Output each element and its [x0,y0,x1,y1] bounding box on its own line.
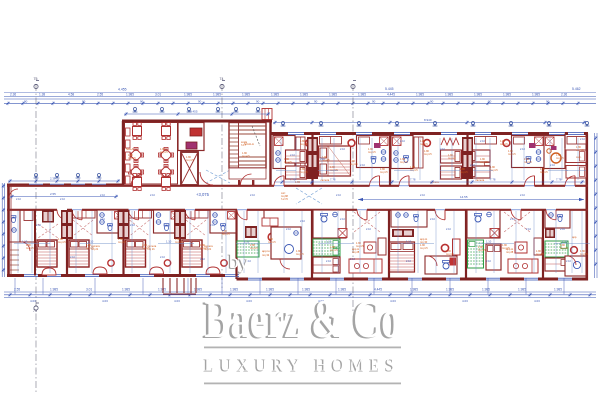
svg-text:mq 4.5: mq 4.5 [200,247,208,250]
svg-text:2.10: 2.10 [320,158,325,161]
svg-text:mq 4.5: mq 4.5 [380,171,388,174]
svg-text:2.10: 2.10 [340,218,345,221]
svg-text:1.985: 1.985 [213,93,221,97]
svg-text:Baerz & Co: Baerz & Co [205,289,401,349]
svg-text:mq 4.5: mq 4.5 [556,157,564,160]
svg-text:1.985: 1.985 [329,93,337,97]
svg-text:mq 4.5: mq 4.5 [250,247,258,250]
svg-text:1.985: 1.985 [158,288,166,292]
svg-text:1.985: 1.985 [482,288,490,292]
svg-text:2.10: 2.10 [210,224,215,227]
svg-text:1.10: 1.10 [166,239,172,243]
svg-text:90: 90 [198,99,202,103]
svg-text:mq 4.5: mq 4.5 [284,161,292,164]
svg-text:14.55: 14.55 [460,195,468,199]
svg-text:cam.: cam. [576,156,582,159]
svg-text:2.10: 2.10 [360,164,365,167]
svg-text:mq 4.5: mq 4.5 [300,143,308,146]
svg-text:2.10: 2.10 [550,164,555,167]
svg-text:mq 4.5: mq 4.5 [580,253,588,256]
svg-text:7.78: 7.78 [410,178,416,182]
svg-text:2.10: 2.10 [440,148,445,151]
svg-text:90: 90 [314,99,318,103]
svg-text:mq 28: mq 28 [352,250,360,254]
svg-text:90: 90 [256,99,260,103]
svg-text:7.78: 7.78 [330,178,336,182]
svg-text:2.10: 2.10 [560,228,565,231]
svg-text:mq 4.5: mq 4.5 [118,241,126,244]
svg-text:mq 4.5: mq 4.5 [478,249,486,252]
svg-text:1.10: 1.10 [88,239,94,243]
svg-text:2.10: 2.10 [400,140,405,143]
svg-text:1.985: 1.985 [416,93,424,97]
svg-text:2.36: 2.36 [10,93,16,97]
svg-text:2.10: 2.10 [250,194,255,197]
svg-text:camera: camera [476,178,485,182]
svg-text:mq 4.5: mq 4.5 [86,247,94,250]
svg-text:mq 4.5: mq 4.5 [350,163,358,166]
svg-text:90: 90 [140,99,144,103]
svg-text:2.10: 2.10 [350,258,355,261]
svg-text:2.10: 2.10 [430,218,435,221]
svg-text:1.985: 1.985 [358,93,366,97]
svg-text:1.985: 1.985 [532,93,540,97]
svg-text:mq 4.5: mq 4.5 [400,161,408,164]
svg-text:mq 4.5: mq 4.5 [160,151,168,154]
svg-text:4.455: 4.455 [190,110,198,114]
svg-text:1.10: 1.10 [22,239,28,243]
svg-text:2.10: 2.10 [100,218,105,221]
svg-text:mq 4.5: mq 4.5 [446,253,454,256]
svg-text:74: 74 [220,77,224,81]
svg-text:mq 4.5: mq 4.5 [26,247,34,250]
svg-text:1.985: 1.985 [300,93,308,97]
svg-text:2.10: 2.10 [326,260,331,263]
svg-text:1.10: 1.10 [406,239,412,243]
svg-text:2.10: 2.10 [526,228,531,231]
svg-text:1.10: 1.10 [562,239,568,243]
svg-text:2.10: 2.10 [446,228,451,231]
svg-text:mq 4.5: mq 4.5 [300,171,308,174]
svg-text:2.10: 2.10 [286,228,291,231]
svg-text:2.10: 2.10 [340,148,345,151]
svg-text:2.10: 2.10 [470,164,475,167]
svg-text:4.03: 4.03 [534,299,540,303]
svg-text:mq 4.5: mq 4.5 [460,171,468,174]
svg-text:2.39: 2.39 [50,177,56,181]
svg-text:1.10: 1.10 [486,239,492,243]
svg-text:2.10: 2.10 [336,194,341,197]
svg-text:75: 75 [33,309,37,313]
svg-text:mq 4.5: mq 4.5 [142,247,150,250]
svg-text:mq 4.5: mq 4.5 [500,143,508,146]
svg-text:SCALA: SCALA [244,142,254,146]
svg-text:2.10: 2.10 [520,194,525,197]
svg-text:2.10: 2.10 [510,218,515,221]
svg-text:2.10: 2.10 [366,228,371,231]
svg-text:4.445: 4.445 [387,93,395,97]
svg-text:7.78: 7.78 [556,178,562,182]
svg-text:2.10: 2.10 [406,260,411,263]
svg-text:1.985: 1.985 [242,93,250,97]
svg-text:2.10: 2.10 [16,198,21,201]
svg-text:1.38: 1.38 [39,93,45,97]
svg-text:mq 4.5: mq 4.5 [576,149,584,152]
svg-text:mq 4.5: mq 4.5 [186,159,194,162]
svg-text:mq 4.5: mq 4.5 [424,153,432,156]
svg-text:1.985: 1.985 [410,288,418,292]
svg-text:1.985: 1.985 [271,93,279,97]
svg-text:app.to: app.to [262,249,270,253]
svg-text:2.10: 2.10 [486,260,491,263]
svg-text:1.985: 1.985 [554,288,562,292]
svg-text:90: 90 [488,99,492,103]
svg-text:2.10: 2.10 [566,260,571,263]
svg-text:2.10: 2.10 [60,198,65,201]
svg-text:2.10: 2.10 [520,148,525,151]
svg-text:5.445: 5.445 [385,87,394,91]
svg-text:90: 90 [82,99,86,103]
svg-text:2.10: 2.10 [70,256,75,259]
svg-text:mq 4.5: mq 4.5 [536,253,544,256]
svg-text:mq 4.5: mq 4.5 [420,247,428,250]
svg-text:by: by [229,251,249,273]
svg-text:4.03: 4.03 [174,299,180,303]
svg-text:1.10: 1.10 [244,239,250,243]
svg-text:90: 90 [372,99,376,103]
svg-text:4.03: 4.03 [102,299,108,303]
svg-text:1.985: 1.985 [194,288,202,292]
svg-text:2.10: 2.10 [130,224,135,227]
svg-text:90: 90 [546,99,550,103]
svg-text:mq 4.5: mq 4.5 [242,155,250,158]
svg-text:1.985: 1.985 [445,93,453,97]
svg-text:7.78: 7.78 [490,178,496,182]
svg-text:SALA: SALA [126,147,134,151]
svg-text:2.55: 2.55 [97,93,103,97]
svg-text:1.985: 1.985 [122,288,130,292]
svg-text:7.78: 7.78 [290,178,296,182]
svg-text:mq 4.5: mq 4.5 [330,249,338,252]
svg-text:2.10: 2.10 [36,224,41,227]
svg-text:75: 75 [34,77,38,81]
svg-text:4.03: 4.03 [462,299,468,303]
svg-text:+3,075: +3,075 [196,192,210,197]
svg-text:h 2.70: h 2.70 [281,198,289,201]
svg-text:mq 4.5: mq 4.5 [560,247,568,250]
svg-text:1.985: 1.985 [126,93,134,97]
svg-text:90: 90 [430,99,434,103]
svg-text:8.940: 8.940 [424,118,432,122]
svg-text:3.01: 3.01 [86,288,92,292]
svg-text:2.36: 2.36 [561,93,567,97]
svg-text:mq 4.5: mq 4.5 [502,247,510,250]
svg-text:mq 4.5: mq 4.5 [58,241,66,244]
svg-text:mq 32: mq 32 [262,253,270,257]
svg-text:mq 4.5: mq 4.5 [480,161,488,164]
svg-text:2.10: 2.10 [300,220,305,223]
svg-text:mq 4.5: mq 4.5 [524,161,532,164]
svg-text:mq 4.5: mq 4.5 [540,171,548,174]
svg-text:mq 4.5: mq 4.5 [128,157,136,160]
svg-text:4.03: 4.03 [30,299,36,303]
svg-text:90: 90 [24,99,28,103]
svg-text:2.10: 2.10 [580,138,585,141]
svg-text:1.10: 1.10 [326,239,332,243]
svg-text:2.10: 2.10 [290,154,295,157]
svg-text:2.10: 2.10 [480,140,485,143]
svg-text:3.01: 3.01 [155,93,161,97]
svg-text:1.985: 1.985 [474,93,482,97]
svg-text:5.462: 5.462 [572,87,581,91]
svg-text:2.10: 2.10 [160,256,165,259]
svg-text:app.: app. [572,236,577,239]
svg-text:2.55: 2.55 [50,192,56,196]
svg-text:1.985: 1.985 [503,93,511,97]
svg-text:1.985: 1.985 [50,288,58,292]
svg-text:mq 4.5: mq 4.5 [420,143,428,146]
svg-text:1.985: 1.985 [184,93,192,97]
svg-text:2.10: 2.10 [150,194,155,197]
svg-text:2.10: 2.10 [200,258,205,261]
svg-text:4.455: 4.455 [118,88,127,92]
svg-text:1.985: 1.985 [518,288,526,292]
svg-text:LUXURY HOMES: LUXURY HOMES [205,355,401,375]
svg-text:2.10: 2.10 [420,194,425,197]
svg-text:mq 4.5: mq 4.5 [296,253,304,256]
svg-text:4.58: 4.58 [68,93,74,97]
svg-text:mq 28: mq 28 [506,250,514,254]
